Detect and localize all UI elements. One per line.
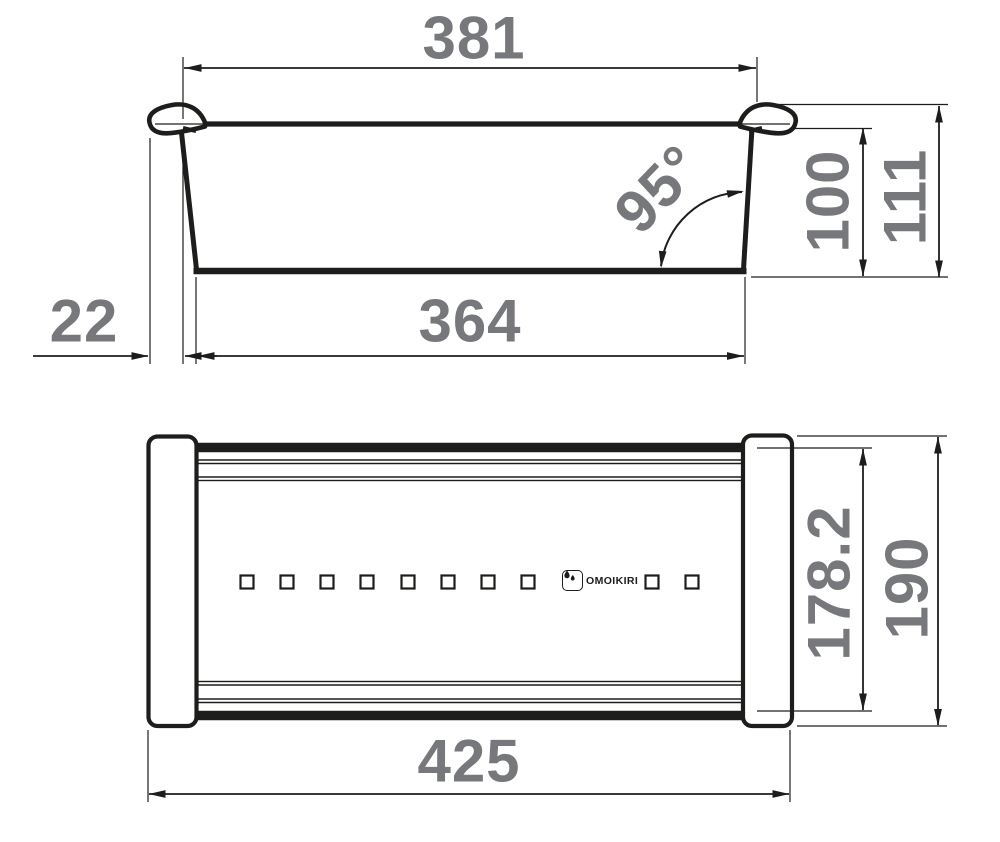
drain-hole <box>321 576 334 589</box>
dim-364-arrow-right-icon <box>727 352 744 360</box>
dim-overall-width-label: 190 <box>873 536 942 639</box>
dim-lip-overhang-label: 22 <box>50 287 119 356</box>
brand-droplet-icon <box>562 570 583 591</box>
brand-name-label: OMOIKIRI <box>586 575 638 587</box>
dim-100-arrow-bottom-icon <box>859 260 867 277</box>
dim-381-arrow-left-icon <box>185 64 202 72</box>
wall-angle-arrow-upper-icon <box>727 190 744 198</box>
drain-hole <box>241 576 254 589</box>
dim-111-arrow-top-icon <box>935 106 943 123</box>
dim-425-arrow-right-icon <box>773 790 790 798</box>
dim-178-arrow-top-icon <box>859 449 867 466</box>
plan-right-handle-cap <box>743 436 792 727</box>
dim-body-width-label: 178.2 <box>795 505 864 660</box>
dim-178-arrow-bottom-icon <box>859 694 867 711</box>
drain-hole <box>646 576 659 589</box>
drain-hole <box>442 576 455 589</box>
drain-hole <box>686 576 699 589</box>
dim-22-arrow-left-icon <box>132 352 149 360</box>
dim-base-width-label: 364 <box>418 287 521 356</box>
side-right-lip-hook <box>740 104 796 133</box>
drain-hole <box>402 576 415 589</box>
dim-111-arrow-bottom-icon <box>935 261 943 278</box>
dim-190-arrow-top-icon <box>934 437 942 454</box>
drain-hole <box>482 576 495 589</box>
drain-hole <box>361 576 374 589</box>
drain-hole <box>522 576 535 589</box>
top-plan-view <box>149 436 793 727</box>
dim-overall-height-label: 111 <box>871 149 940 246</box>
side-left-lip-hook <box>149 104 205 133</box>
brand-logo: OMOIKIRI <box>562 569 638 592</box>
dim-190-arrow-bottom-icon <box>934 709 942 726</box>
plan-inner-floor <box>197 481 745 682</box>
drawing-linework <box>0 0 1000 842</box>
dim-425-arrow-left-icon <box>149 790 166 798</box>
dim-bowl-depth-label: 100 <box>794 149 863 252</box>
drain-hole <box>281 576 294 589</box>
dim-rim-width-label: 381 <box>422 4 525 73</box>
dim-381-arrow-right-icon <box>739 64 756 72</box>
wall-angle-arrow-lower-icon <box>659 251 667 268</box>
technical-drawing-canvas: 381 22 364 95° 100 111 425 178.2 190 OMO… <box>0 0 1000 842</box>
dim-100-arrow-top-icon <box>859 128 867 145</box>
plan-left-handle-cap <box>149 437 197 727</box>
side-right-wall <box>744 128 753 270</box>
dim-overall-length-label: 425 <box>417 727 520 796</box>
